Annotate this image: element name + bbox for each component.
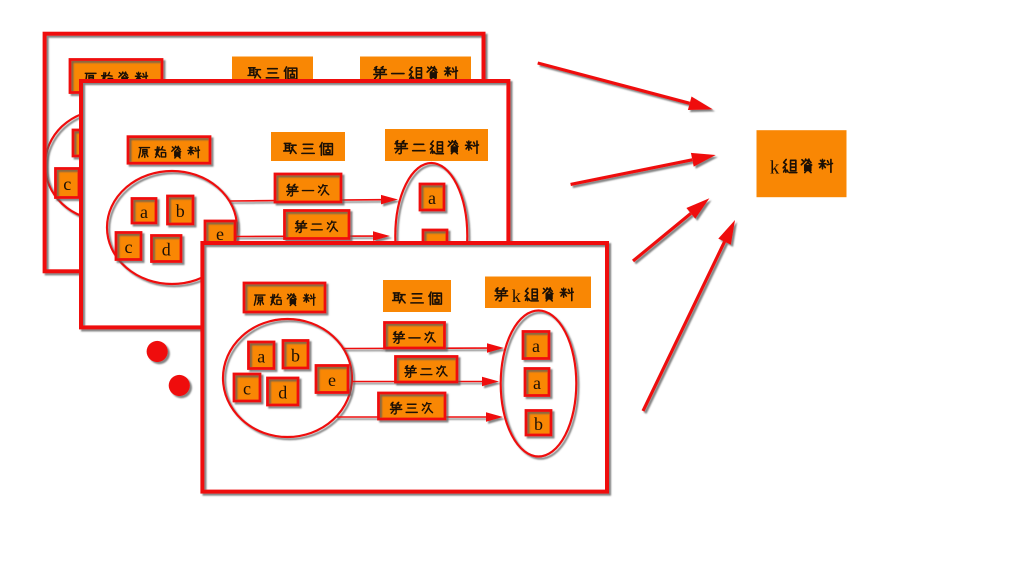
svg-text:a: a [532, 336, 540, 356]
svg-text:k: k [512, 286, 522, 306]
svg-text:b: b [291, 345, 300, 365]
svg-text:b: b [534, 414, 543, 434]
svg-text:a: a [533, 373, 541, 393]
svg-text:b: b [176, 201, 185, 221]
svg-text:c: c [125, 237, 133, 257]
svg-text:a: a [428, 188, 436, 208]
svg-text:c: c [243, 379, 251, 399]
svg-text:c: c [63, 174, 71, 194]
svg-text:k: k [770, 158, 780, 179]
svg-text:d: d [278, 383, 287, 403]
svg-text:e: e [328, 370, 336, 390]
svg-text:a: a [257, 346, 265, 366]
svg-text:a: a [140, 202, 148, 222]
svg-text:d: d [162, 240, 171, 260]
